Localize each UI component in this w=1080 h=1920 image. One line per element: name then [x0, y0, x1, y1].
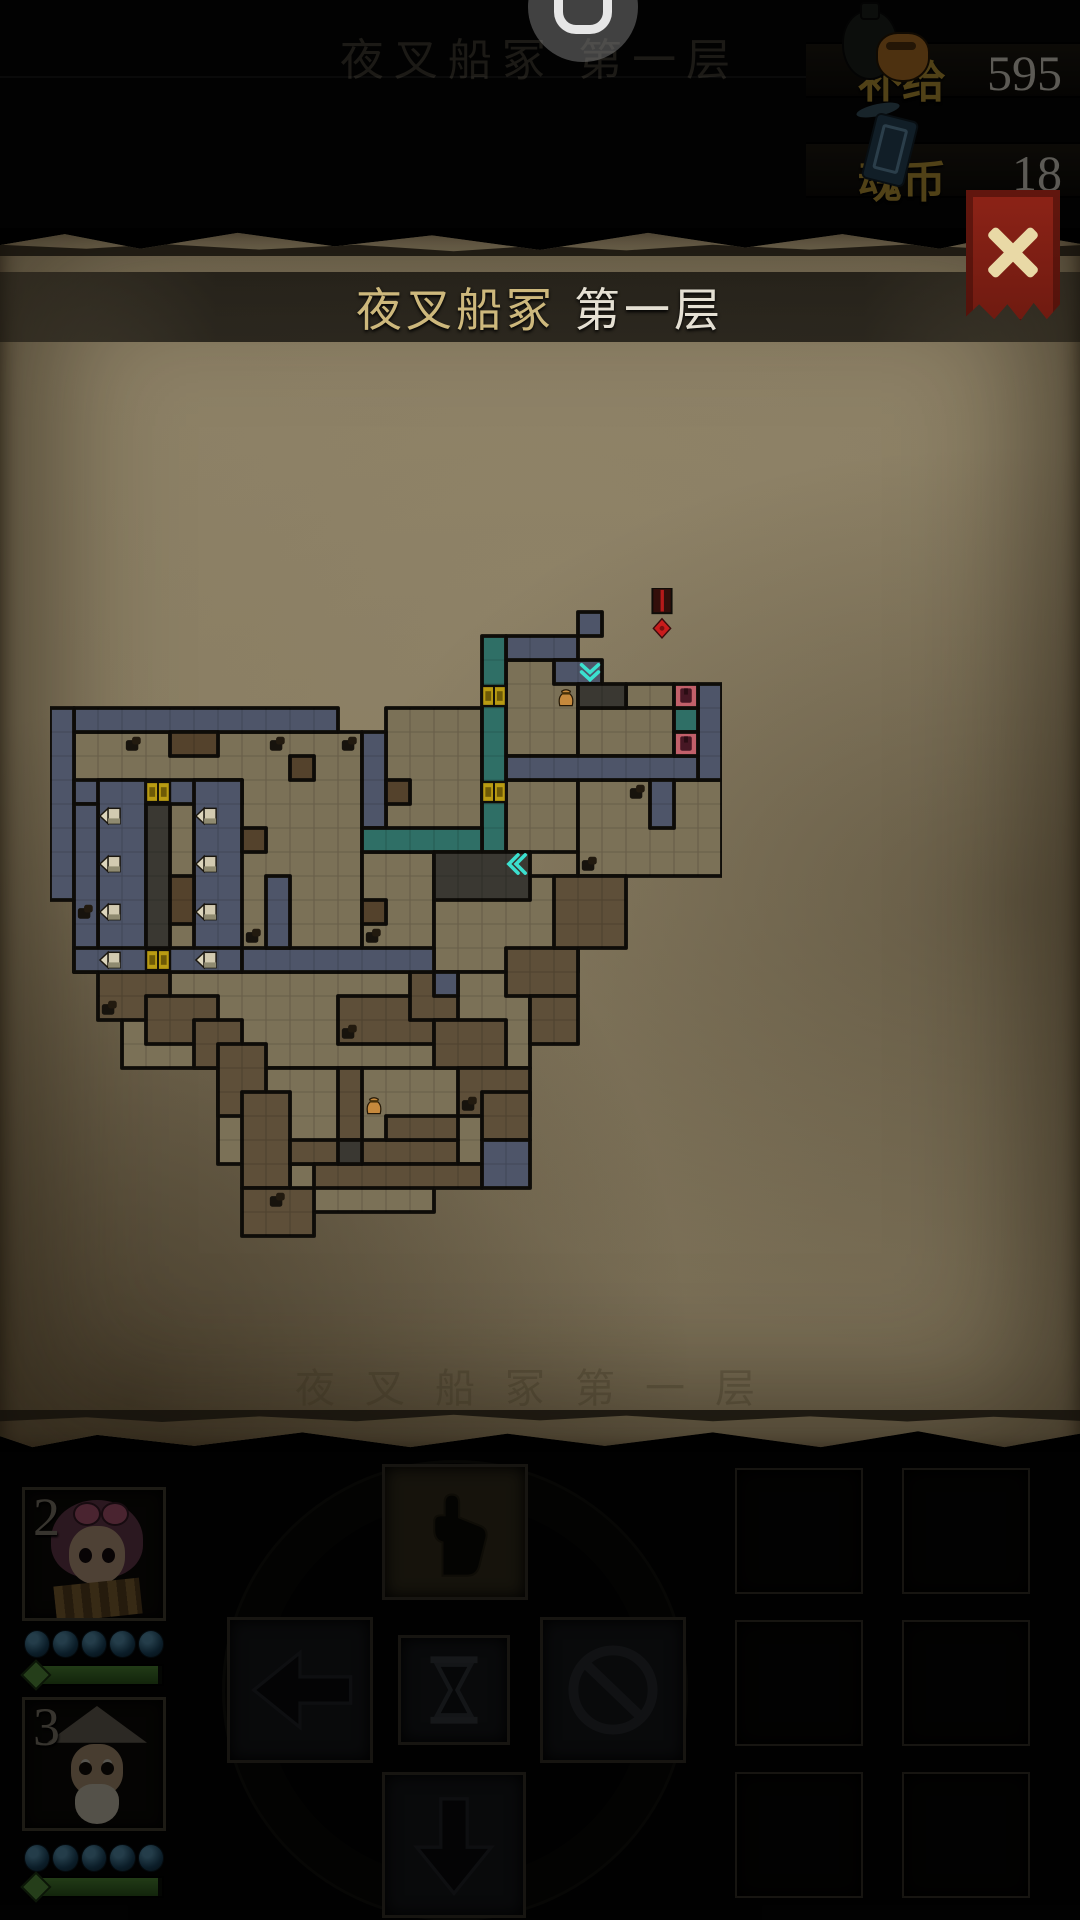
parchment-ghost-text: 夜叉船冢第一层 — [0, 1356, 1080, 1414]
recorder-u-icon — [554, 0, 612, 34]
door-icon — [680, 688, 692, 702]
map-flooded-corridor — [434, 972, 458, 996]
map-floor — [506, 780, 578, 852]
zone-name: 夜叉船冢 — [356, 274, 556, 340]
map-title-band: 夜叉船冢 第一层 — [0, 272, 1080, 342]
map-debris-patch — [386, 780, 410, 804]
gate-icon — [482, 686, 506, 706]
map-debris-patch — [242, 828, 266, 852]
boss-icon — [652, 588, 671, 638]
map-flooded-corridor — [266, 876, 290, 948]
map-dark-room — [338, 1140, 362, 1164]
door-icon — [680, 736, 692, 750]
map-wooden-corridor — [386, 1116, 458, 1140]
map-teal-corridor — [674, 708, 698, 732]
torn-edge-bottom — [0, 1410, 1080, 1426]
map-flooded-corridor — [578, 612, 602, 636]
gate-icon — [146, 782, 170, 802]
map-teal-corridor — [362, 828, 482, 852]
map-flooded-corridor — [506, 636, 578, 660]
dungeon-map — [50, 588, 722, 1260]
map-wooden-corridor — [314, 1164, 482, 1188]
game-screen: 补给 595 魂币 18 夜叉船冢 第一层 夜叉船冢 第一层 夜叉船冢第一层 — [0, 0, 1080, 1920]
map-wooden-corridor — [338, 1068, 362, 1140]
map-overlay: 夜叉船冢 第一层 夜叉船冢第一层 — [0, 228, 1080, 1452]
map-teal-corridor — [482, 636, 506, 852]
map-debris-patch — [362, 900, 386, 924]
map-debris-patch — [290, 756, 314, 780]
floor-name: 第一层 — [574, 274, 724, 340]
gate-icon — [482, 782, 506, 802]
gate-icon — [146, 950, 170, 970]
map-wooden-corridor — [290, 1140, 458, 1164]
map-flooded-corridor — [74, 708, 338, 732]
map-wooden-corridor — [554, 876, 626, 948]
